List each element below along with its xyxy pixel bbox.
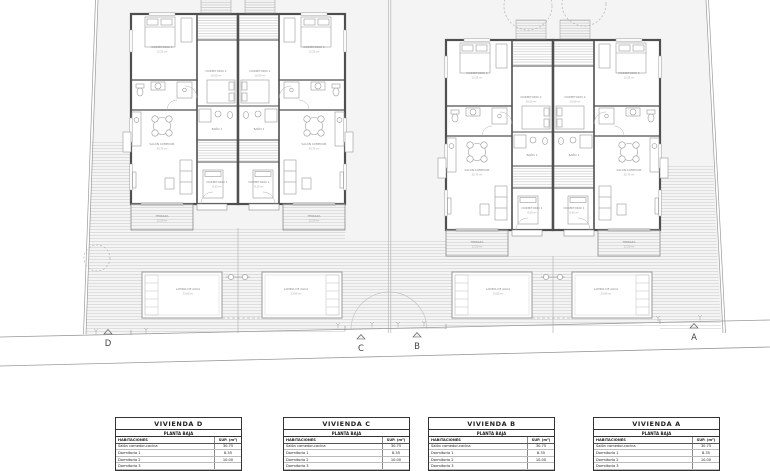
area-table-vivienda-d: VIVIENDA D PLANTA BAJA HABITACIONES SUP.… bbox=[115, 417, 242, 471]
table-row: Dormitorio 3 bbox=[594, 463, 719, 470]
pool-d bbox=[142, 272, 222, 318]
unit-c-floorplan bbox=[238, 0, 353, 230]
pool-c bbox=[262, 272, 342, 318]
col-habitaciones: HABITACIONES bbox=[116, 437, 214, 443]
table-row: Dormitorio 3 bbox=[429, 463, 554, 470]
section-marker-d-label: D bbox=[105, 339, 112, 349]
table-row: Salón comedor-cocina30.75 bbox=[116, 444, 241, 451]
table-row: Dormitorio 18.35 bbox=[284, 450, 409, 457]
table-title: VIVIENDA C bbox=[284, 418, 409, 430]
col-sup: SUP. (m²) bbox=[382, 437, 409, 443]
table-row: Dormitorio 3 bbox=[284, 463, 409, 470]
table-title: VIVIENDA D bbox=[116, 418, 241, 430]
table-row: Dormitorio 210.00 bbox=[429, 457, 554, 464]
site-plan: D C B A DORMITORIO 313.55 m²DORMITORIO 2… bbox=[0, 0, 770, 460]
table-row: Salón comedor-cocina30.75 bbox=[594, 444, 719, 451]
pool-a bbox=[572, 272, 652, 318]
table-subtitle: PLANTA BAJA bbox=[116, 430, 241, 437]
unit-b-floorplan bbox=[438, 20, 553, 256]
section-marker-c-label: C bbox=[358, 344, 364, 354]
pool-b bbox=[452, 272, 532, 318]
table-row: Salón comedor-cocina30.75 bbox=[284, 444, 409, 451]
table-subtitle: PLANTA BAJA bbox=[429, 430, 554, 437]
table-header: HABITACIONES SUP. (m²) bbox=[429, 437, 554, 444]
section-marker-c: C bbox=[357, 335, 365, 355]
table-header: HABITACIONES SUP. (m²) bbox=[594, 437, 719, 444]
col-habitaciones: HABITACIONES bbox=[594, 437, 692, 443]
col-sup: SUP. (m²) bbox=[214, 437, 241, 443]
area-table-vivienda-b: VIVIENDA B PLANTA BAJA HABITACIONES SUP.… bbox=[428, 417, 555, 471]
table-row: Dormitorio 3 bbox=[116, 463, 241, 470]
col-habitaciones: HABITACIONES bbox=[284, 437, 382, 443]
section-marker-d: D bbox=[104, 330, 112, 350]
table-title: VIVIENDA B bbox=[429, 418, 554, 430]
section-marker-b-label: B bbox=[414, 342, 420, 352]
col-sup: SUP. (m²) bbox=[527, 437, 554, 443]
table-row: Salón comedor-cocina30.75 bbox=[429, 444, 554, 451]
table-subtitle: PLANTA BAJA bbox=[284, 430, 409, 437]
area-table-vivienda-a: VIVIENDA A PLANTA BAJA HABITACIONES SUP.… bbox=[593, 417, 720, 471]
site-plan-svg: D C B A DORMITORIO 313.55 m²DORMITORIO 2… bbox=[0, 0, 770, 460]
table-row: Dormitorio 18.35 bbox=[429, 450, 554, 457]
table-title: VIVIENDA A bbox=[594, 418, 719, 430]
unit-a-floorplan bbox=[553, 20, 668, 256]
unit-d-floorplan bbox=[123, 0, 238, 230]
section-marker-b: B bbox=[413, 333, 421, 353]
table-row: Dormitorio 18.35 bbox=[116, 450, 241, 457]
table-subtitle: PLANTA BAJA bbox=[594, 430, 719, 437]
col-sup: SUP. (m²) bbox=[692, 437, 719, 443]
section-marker-a: A bbox=[690, 324, 698, 344]
table-row: Dormitorio 210.00 bbox=[594, 457, 719, 464]
building-left bbox=[123, 0, 353, 230]
table-header: HABITACIONES SUP. (m²) bbox=[116, 437, 241, 444]
table-row: Dormitorio 210.00 bbox=[116, 457, 241, 464]
building-right bbox=[438, 20, 668, 256]
section-marker-a-label: A bbox=[691, 333, 697, 343]
area-table-vivienda-c: VIVIENDA C PLANTA BAJA HABITACIONES SUP.… bbox=[283, 417, 410, 471]
col-habitaciones: HABITACIONES bbox=[429, 437, 527, 443]
table-header: HABITACIONES SUP. (m²) bbox=[284, 437, 409, 444]
table-row: Dormitorio 210.00 bbox=[284, 457, 409, 464]
table-row: Dormitorio 18.35 bbox=[594, 450, 719, 457]
